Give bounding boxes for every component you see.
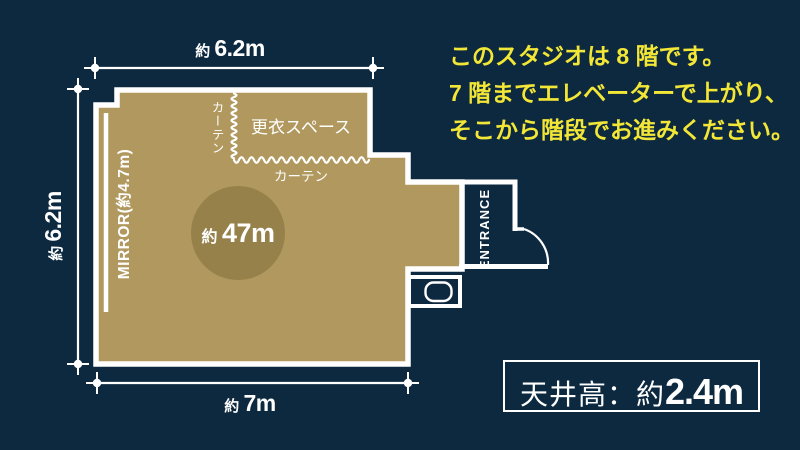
notice-line-3: そこから階段でお進みください。 — [449, 112, 794, 149]
floor-access-notice: このスタジオは 8 階です。 7 階までエレベーターで上がり、 そこから階段でお… — [449, 38, 794, 149]
studio-floorplan-page: 約 47m MIRROR(約4.7m) 更衣スペース カーテン ENTRANCE — [0, 0, 800, 450]
entrance-area: ENTRANCE — [459, 180, 548, 270]
ceiling-height-label: 天井高：約 — [520, 373, 665, 413]
entrance-label: ENTRANCE — [477, 189, 492, 269]
svg-text:約 6.2m: 約 6.2m — [40, 191, 66, 261]
notice-line-1: このスタジオは 8 階です。 — [449, 38, 794, 75]
mirror-label: MIRROR(約4.7m) — [114, 149, 133, 280]
svg-text:約 7m: 約 7m — [224, 390, 275, 416]
ceiling-height-value: 2.4m — [665, 371, 743, 413]
dimension-left: 約 6.2m — [40, 78, 89, 375]
dimension-top: 約 6.2m — [84, 35, 384, 79]
svg-text:約 6.2m: 約 6.2m — [195, 35, 265, 61]
toilet-room — [409, 277, 460, 306]
changing-space-label: 更衣スペース — [251, 118, 351, 137]
notice-line-2: 7 階までエレベーターで上がり、 — [449, 75, 794, 112]
dimension-bottom: 約 7m — [86, 372, 419, 416]
curtain-label-horizontal: カーテン — [274, 169, 328, 184]
door-swing-arc — [524, 229, 548, 265]
curtain-label-vertical: カーテン — [210, 101, 223, 155]
ceiling-height-box: 天井高：約2.4m — [503, 360, 760, 412]
